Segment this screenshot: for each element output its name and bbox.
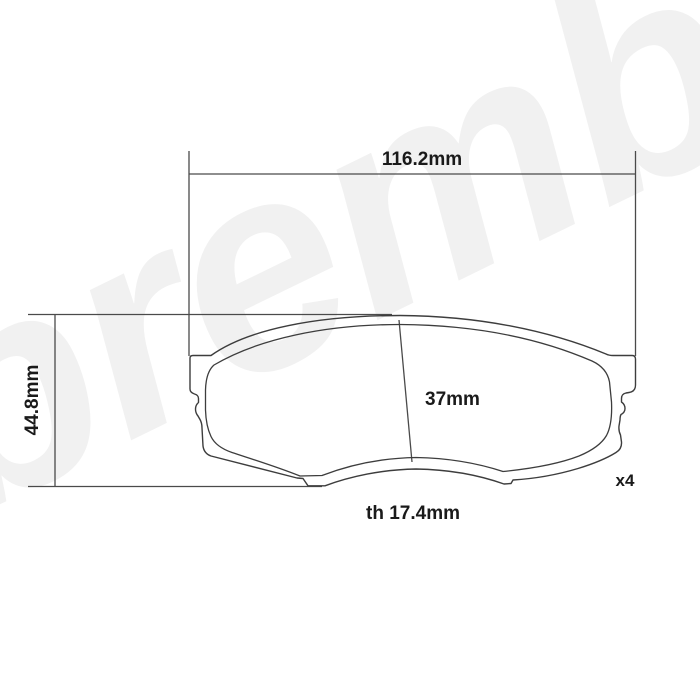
quantity-label: x4: [605, 471, 645, 491]
width-dimension-label: 116.2mm: [352, 150, 492, 170]
brake-pad-diagram: [0, 0, 700, 700]
pad-height-dimension-label: 37mm: [425, 390, 505, 410]
technical-drawing: brembo 116.2mm 44.8mm 37mm x4 th 17.4mm: [0, 0, 700, 700]
pad-height-measure-line: [399, 320, 412, 462]
thickness-dimension-label: th 17.4mm: [343, 504, 483, 524]
pad-inner-outline: [206, 325, 612, 477]
height-dimension-lines: [28, 315, 392, 487]
height-dimension-label: 44.8mm: [23, 330, 43, 470]
